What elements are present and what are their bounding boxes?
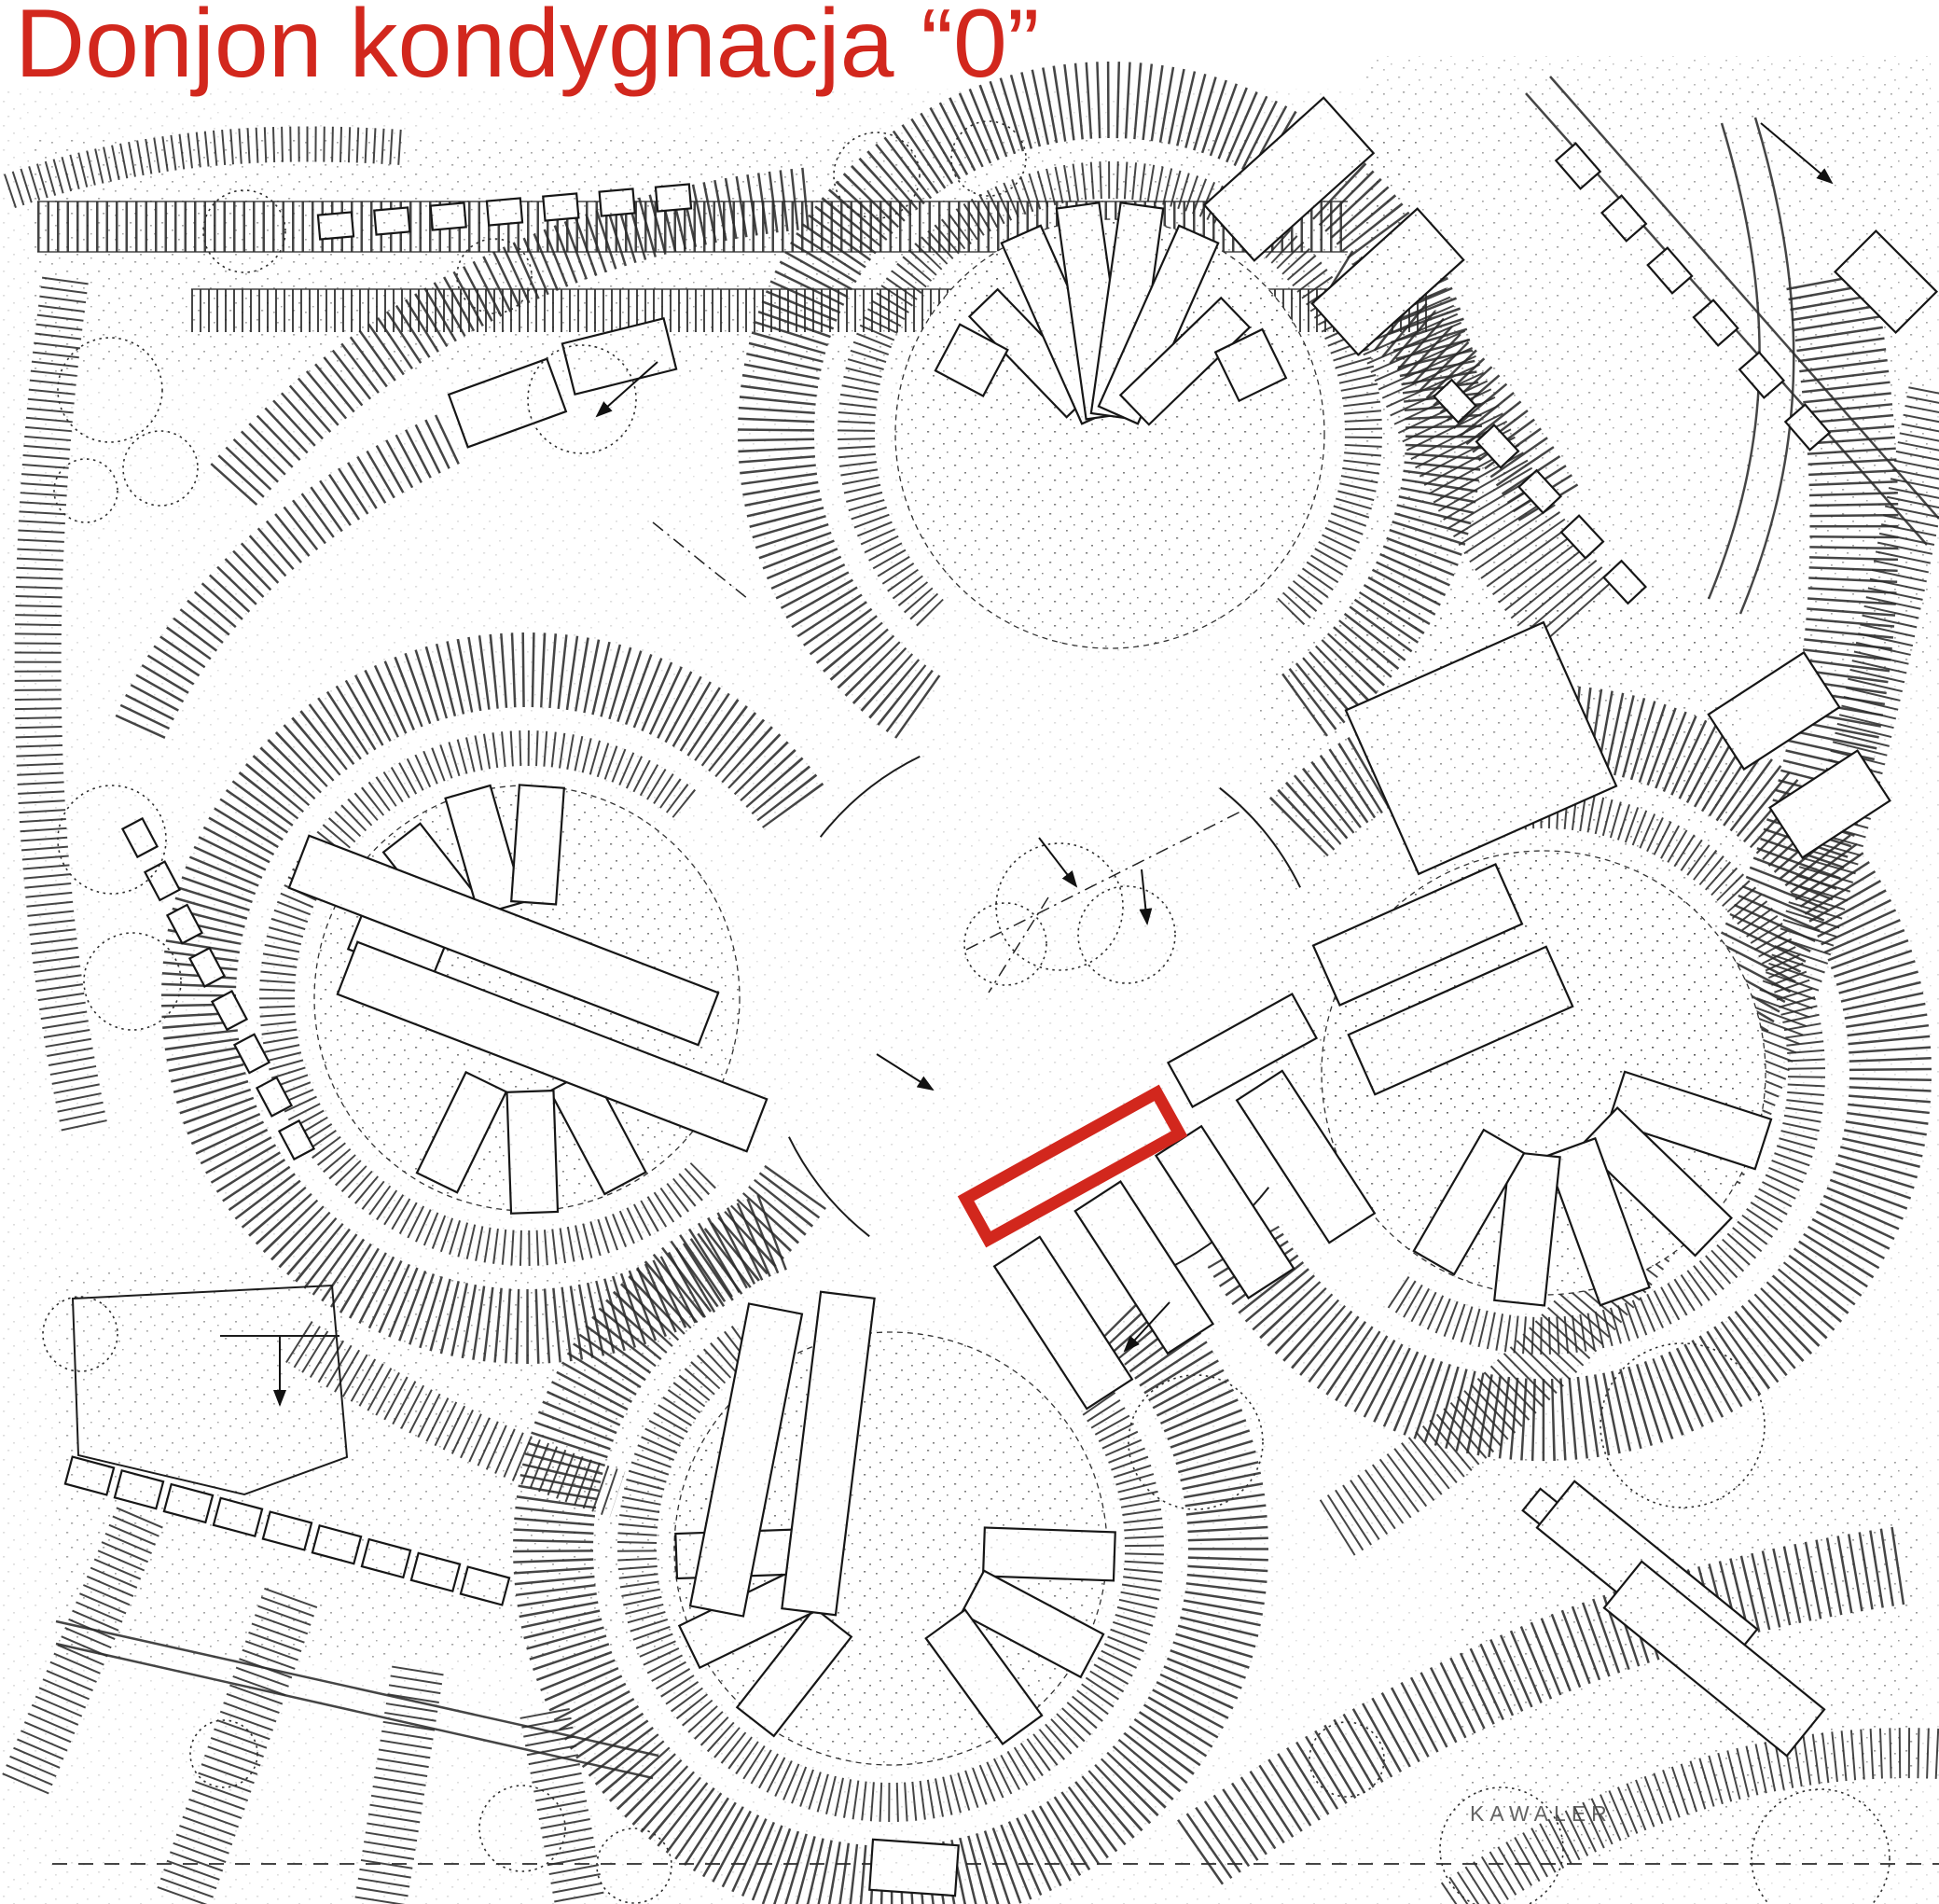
site-plan-drawing: Donjon kondygnacja “0” KAWALER <box>0 0 1939 1904</box>
noise-southeast <box>1455 1455 1921 1856</box>
noise-northeast <box>1362 56 1931 672</box>
noise-top-strip <box>28 140 1418 373</box>
annotation-noise-texture <box>0 56 1939 1904</box>
noise-southwest <box>56 1269 709 1661</box>
kawaler-label: KAWALER <box>1470 1801 1613 1826</box>
noise-east-cluster <box>1259 597 1744 1119</box>
page-title: Donjon kondygnacja “0” <box>15 0 1039 98</box>
site-plan-page: Donjon kondygnacja “0” KAWALER <box>0 0 1939 1904</box>
